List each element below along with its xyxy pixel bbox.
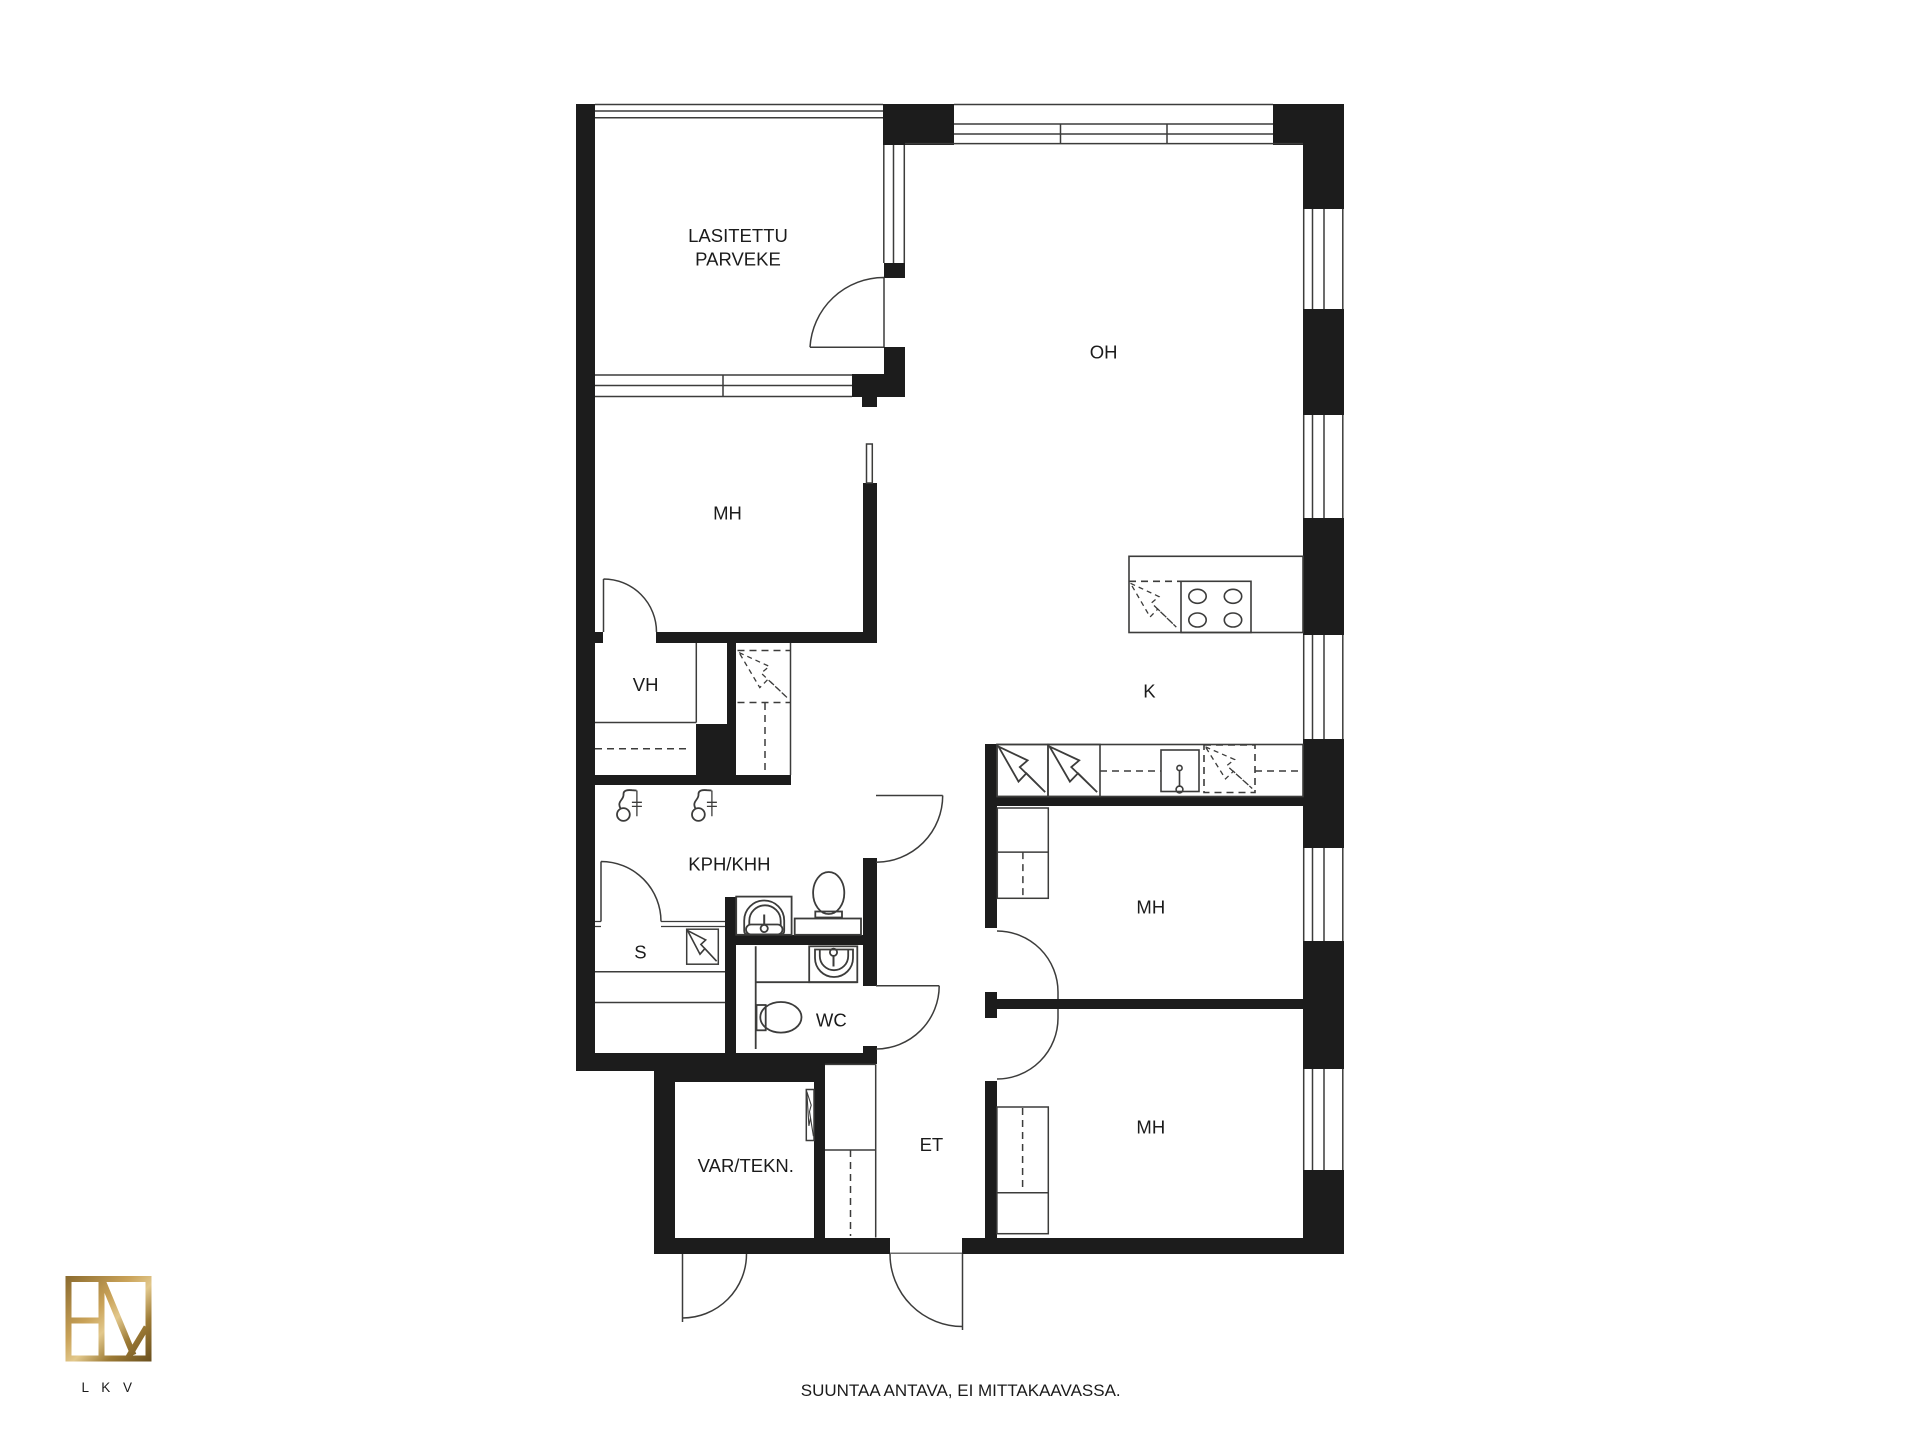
svg-text:KPH/KHH: KPH/KHH: [688, 854, 770, 875]
svg-text:VH: VH: [633, 674, 659, 695]
svg-text:K: K: [1143, 681, 1156, 702]
svg-text:MH: MH: [1136, 1117, 1165, 1138]
svg-text:MH: MH: [713, 503, 742, 524]
svg-text:PARVEKE: PARVEKE: [695, 249, 781, 270]
svg-text:LASITETTU: LASITETTU: [688, 225, 788, 246]
svg-text:MH: MH: [1136, 897, 1165, 918]
svg-text:S: S: [634, 942, 646, 963]
svg-text:WC: WC: [816, 1010, 847, 1031]
svg-text:L K V: L K V: [81, 1380, 136, 1395]
svg-text:OH: OH: [1090, 341, 1118, 362]
svg-text:SUUNTAA ANTAVA, EI MITTAKAAVAS: SUUNTAA ANTAVA, EI MITTAKAAVASSA.: [801, 1381, 1121, 1400]
svg-text:VAR/TEKN.: VAR/TEKN.: [698, 1155, 794, 1176]
svg-text:ET: ET: [920, 1134, 944, 1155]
